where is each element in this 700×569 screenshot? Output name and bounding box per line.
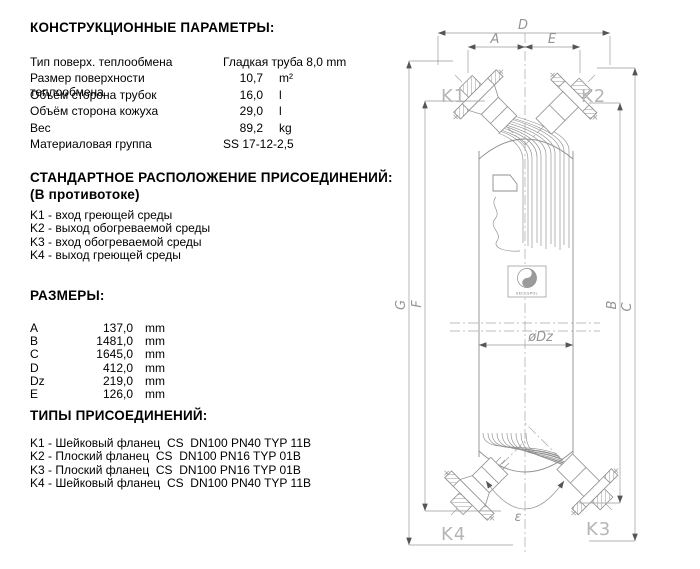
dimension-row-label: D xyxy=(30,361,55,375)
dimension-row-unit: mm xyxy=(133,347,165,361)
construction-row: Объём сторона трубок16,0l xyxy=(30,88,350,104)
logo-plate: SECESPOL xyxy=(508,266,546,297)
dim-label-f: F xyxy=(410,300,425,308)
dim-label-e: E xyxy=(548,32,557,47)
connections-title: ТИПЫ ПРИСОЕДИНЕНИЙ: xyxy=(30,408,207,423)
construction-row-label: Объём сторона трубок xyxy=(30,88,200,102)
construction-row-label: Материаловая группа xyxy=(30,137,223,151)
port-label-k1: K1 xyxy=(441,86,466,107)
dimension-row-unit: mm xyxy=(133,387,165,401)
dimension-row-unit: mm xyxy=(133,334,165,348)
dimension-row: E126,0mm xyxy=(30,387,180,400)
connection-type-item: K3 - Плоский фланец CS DN100 PN16 TYP 01… xyxy=(30,464,311,477)
connections-list: K1 - Шейковый фланец CS DN100 PN40 TYP 1… xyxy=(30,437,311,491)
port-label-k2: K2 xyxy=(581,86,606,107)
construction-table: Тип поверх. теплообменаГладкая труба 8,0… xyxy=(30,55,350,153)
dim-label-d: D xyxy=(518,18,528,33)
technical-drawing: SECESPOL D A E G F B C øDz ε K1 K2 K4 K3 xyxy=(395,5,660,563)
construction-row-unit: l xyxy=(263,104,339,118)
dimension-row-unit: mm xyxy=(133,374,165,388)
construction-row-value: SS 17-12-2,5 xyxy=(223,137,294,151)
dimension-row: D412,0mm xyxy=(30,361,180,374)
construction-row-unit: l xyxy=(263,88,339,102)
dimension-row-value: 126,0 xyxy=(55,387,133,401)
dim-label-a: A xyxy=(490,32,500,47)
nozzle-k3 xyxy=(541,438,629,526)
dimension-row-unit: mm xyxy=(133,361,165,375)
dimension-row: B1481,0mm xyxy=(30,334,180,347)
arrangement-list: K1 - вход греющей средыK2 - выход обогре… xyxy=(30,209,210,263)
dimension-row-label: E xyxy=(30,387,55,401)
dimension-row-label: A xyxy=(30,321,55,335)
construction-row: Объём сторона кожуха29,0l xyxy=(30,104,350,120)
construction-row-label: Объём сторона кожуха xyxy=(30,104,200,118)
logo-text: SECESPOL xyxy=(516,292,538,296)
construction-row-value: 16,0 xyxy=(200,88,263,102)
connection-type-item: K4 - Шейковый фланец CS DN100 PN40 TYP 1… xyxy=(30,477,311,490)
dimension-row-label: Dz xyxy=(30,374,55,388)
dimension-row: Dz219,0mm xyxy=(30,374,180,387)
dimension-row-value: 1645,0 xyxy=(55,347,133,361)
dimensions-title: РАЗМЕРЫ: xyxy=(30,288,105,303)
construction-row-value: 10,7 xyxy=(200,71,263,85)
arrangement-subtitle: (В противотоке) xyxy=(30,187,393,204)
port-label-k4: K4 xyxy=(441,524,466,545)
construction-row: Тип поверх. теплообменаГладкая труба 8,0… xyxy=(30,55,350,71)
construction-row: Материаловая группаSS 17-12-2,5 xyxy=(30,137,350,153)
dimension-row-value: 412,0 xyxy=(55,361,133,375)
vessel-shell xyxy=(479,139,573,472)
construction-row-value: 29,0 xyxy=(200,104,263,118)
construction-row-value: 89,2 xyxy=(200,121,263,135)
dimension-row-value: 1481,0 xyxy=(55,334,133,348)
construction-row: Размер поверхности теплообмена10,7m² xyxy=(30,71,350,87)
connection-type-item: K1 - Шейковый фланец CS DN100 PN40 TYP 1… xyxy=(30,437,311,450)
connection-type-item: K2 - Плоский фланец CS DN100 PN16 TYP 01… xyxy=(30,450,311,463)
arrangement-item: K2 - выход обогреваемой среды xyxy=(30,222,210,235)
construction-row-label: Тип поверх. теплообмена xyxy=(30,55,223,69)
dim-label-b: B xyxy=(605,300,620,309)
dimension-row: A137,0mm xyxy=(30,321,180,334)
arrangement-heading: СТАНДАРТНОЕ РАСПОЛОЖЕНИЕ ПРИСОЕДИНЕНИЙ: … xyxy=(30,170,393,203)
dimension-row-value: 137,0 xyxy=(55,321,133,335)
dimensions-table: A137,0mmB1481,0mmC1645,0mmD412,0mmDz219,… xyxy=(30,321,180,400)
dimension-row-label: B xyxy=(30,334,55,348)
construction-row-label: Вес xyxy=(30,121,200,135)
dim-label-c: C xyxy=(620,302,635,312)
dimension-row: C1645,0mm xyxy=(30,347,180,360)
dimension-row-unit: mm xyxy=(133,321,165,335)
arrangement-item: K4 - выход греющей среды xyxy=(30,249,210,262)
construction-row-value: Гладкая труба 8,0 mm xyxy=(223,55,346,69)
dimension-row-label: C xyxy=(30,347,55,361)
dim-label-dz: øDz xyxy=(527,330,554,345)
dim-label-g: G xyxy=(395,300,409,310)
arrangement-title: СТАНДАРТНОЕ РАСПОЛОЖЕНИЕ ПРИСОЕДИНЕНИЙ: xyxy=(30,170,393,187)
port-label-k3: K3 xyxy=(586,519,611,540)
arrangement-item: K1 - вход греющей среды xyxy=(30,209,210,222)
construction-row: Вес89,2kg xyxy=(30,121,350,137)
arrangement-item: K3 - вход обогреваемой среды xyxy=(30,236,210,249)
construction-row-unit: m² xyxy=(263,71,339,85)
dim-label-angle: ε xyxy=(514,510,521,525)
construction-row-unit: kg xyxy=(263,121,339,135)
dimension-row-value: 219,0 xyxy=(55,374,133,388)
nozzle-k4 xyxy=(432,441,524,533)
construction-title: КОНСТРУКЦИОННЫЕ ПАРАМЕТРЫ: xyxy=(30,20,275,35)
